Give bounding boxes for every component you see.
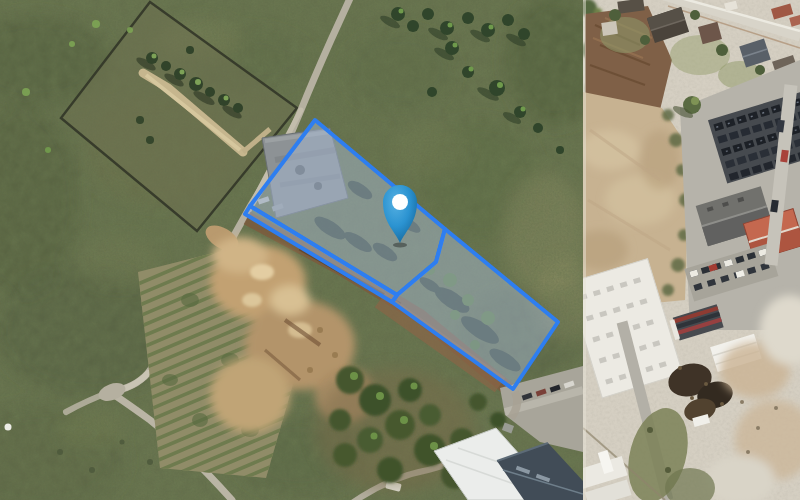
- pin-center-dot: [392, 194, 408, 210]
- pin-shadow: [393, 243, 407, 248]
- right-satellite-tile: [567, 0, 800, 500]
- map-viewport[interactable]: [0, 0, 800, 500]
- tile-seam: [583, 0, 586, 500]
